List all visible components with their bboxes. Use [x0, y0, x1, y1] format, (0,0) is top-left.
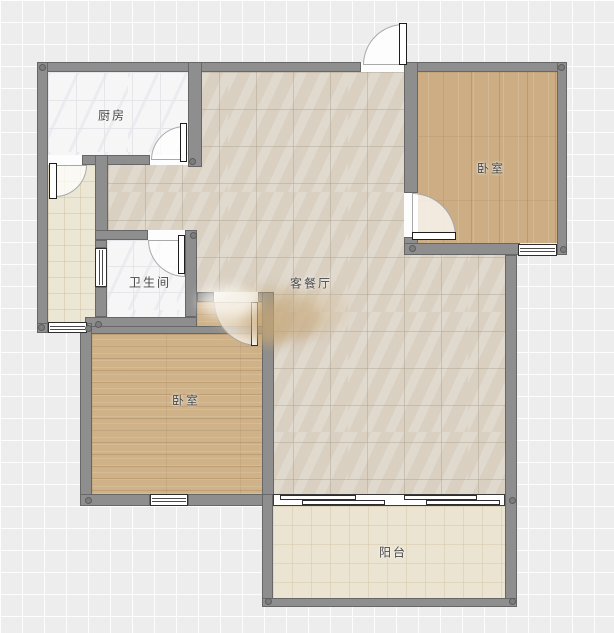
- floor-plan: 厨房 卧室 卫生间 客餐厅 卧室 阳台: [0, 0, 614, 633]
- room-label-kitchen: 厨房: [98, 107, 126, 124]
- bedroom-bottom-window: [150, 494, 188, 506]
- wall-balcony-left: [262, 494, 273, 607]
- hallway-window: [48, 322, 87, 333]
- room-label-bedroom-top: 卧室: [477, 160, 505, 177]
- wall-bathroom-left-lower: [95, 287, 107, 317]
- watermark-smudge: [198, 286, 258, 318]
- wall-bathroom-right: [185, 230, 197, 317]
- room-label-balcony: 阳台: [379, 544, 407, 561]
- watermark-smudge: [300, 290, 348, 330]
- wall-joint-dot: [85, 497, 92, 504]
- wall-joint-dot: [509, 497, 516, 504]
- wall-bathroom-left-upper: [95, 240, 107, 248]
- entry-door-leaf: [399, 23, 407, 65]
- wall-joint-dot: [38, 324, 45, 331]
- room-label-bathroom: 卫生间: [129, 274, 171, 291]
- wall-joint-dot: [558, 64, 565, 71]
- wall-bedroom-bottom-south-right: [188, 494, 273, 506]
- wall-kitchen-bottom: [82, 155, 150, 165]
- wall-joint-dot: [509, 598, 516, 605]
- bathroom-window: [95, 248, 107, 287]
- room-label-bedroom-bottom: 卧室: [172, 392, 200, 409]
- wall-joint-dot: [95, 321, 102, 328]
- wall-joint-dot: [189, 158, 196, 165]
- wall-top-right: [404, 62, 567, 72]
- wall-kitchen-right: [188, 62, 202, 167]
- wall-bedroom-top-left-upper: [404, 62, 418, 193]
- wall-joint-dot: [39, 64, 46, 71]
- kitchen-door-leaf: [180, 123, 187, 162]
- bedroom-top-window: [518, 244, 557, 256]
- watermark-smudge: [256, 303, 282, 348]
- room-label-living-dining: 客餐厅: [290, 275, 332, 292]
- wall-living-right: [505, 255, 517, 607]
- wall-hall-tee: [95, 155, 108, 240]
- wall-joint-dot: [190, 232, 197, 239]
- wall-bedroom-top-bottom: [404, 243, 520, 255]
- bathroom-door-leaf: [178, 235, 185, 274]
- wall-bedroom-bottom-left: [80, 326, 92, 506]
- balcony-sliding-door: [273, 494, 505, 506]
- wall-joint-dot: [85, 325, 92, 332]
- bedroom-bottom-floor: [92, 334, 263, 494]
- wall-joint-dot: [265, 598, 272, 605]
- bedroom-top-door-leaf: [412, 232, 456, 240]
- wall-right-outer: [557, 62, 567, 255]
- wall-bathroom-top: [95, 230, 148, 240]
- sliding-panel: [302, 500, 385, 505]
- entry-door-swing: [363, 24, 404, 65]
- hallway-door-leaf: [49, 163, 57, 199]
- sliding-panel: [426, 500, 500, 505]
- wall-left-outer: [37, 62, 48, 333]
- wall-joint-dot: [560, 246, 567, 253]
- wall-joint-dot: [409, 245, 416, 252]
- wall-balcony-bottom: [262, 598, 517, 607]
